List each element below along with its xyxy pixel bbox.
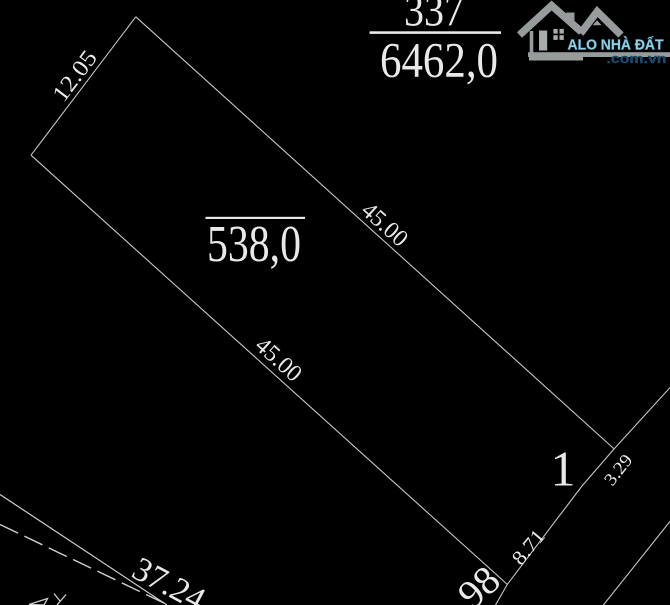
svg-text:8.71: 8.71 <box>508 526 550 570</box>
svg-text:538,0: 538,0 <box>207 216 301 273</box>
svg-text:337: 337 <box>404 0 464 36</box>
svg-text:.com.vn: .com.vn <box>607 52 667 66</box>
svg-text:37.24: 37.24 <box>126 550 211 605</box>
svg-text:ALO NHÀ ĐẤT: ALO NHÀ ĐẤT <box>568 37 664 54</box>
svg-text:98: 98 <box>449 557 509 605</box>
svg-text:6462,0: 6462,0 <box>380 31 498 87</box>
svg-text:3.29: 3.29 <box>600 450 637 489</box>
svg-text:12.05: 12.05 <box>48 46 103 107</box>
svg-text:1: 1 <box>551 440 576 496</box>
svg-text:45.00: 45.00 <box>356 198 413 253</box>
